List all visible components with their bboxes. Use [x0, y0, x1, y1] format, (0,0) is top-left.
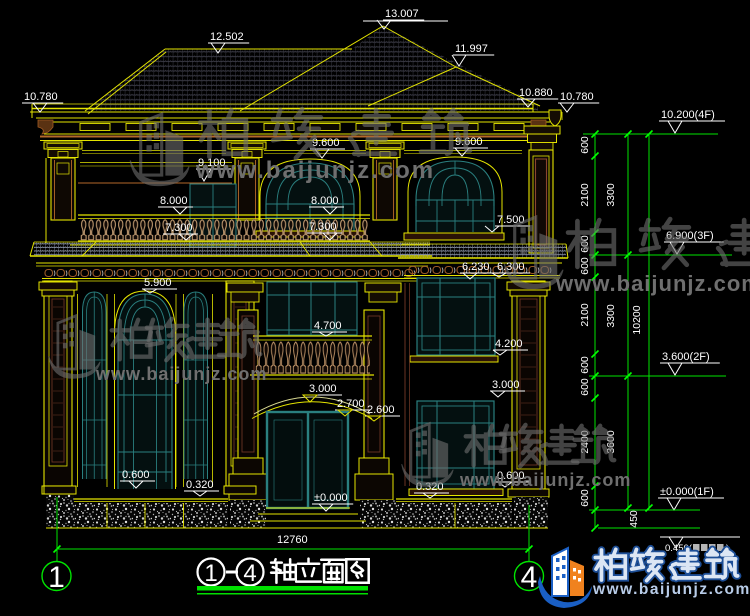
svg-text:3.600(2F): 3.600(2F) — [662, 351, 710, 363]
svg-text:www.baijunjz.com: www.baijunjz.com — [592, 581, 750, 598]
svg-text:5.900: 5.900 — [144, 277, 172, 289]
svg-text:13.007: 13.007 — [385, 8, 419, 20]
svg-text:6.300: 6.300 — [497, 261, 525, 273]
svg-text:600: 600 — [579, 136, 591, 154]
svg-text:4: 4 — [521, 561, 538, 594]
svg-text:2100: 2100 — [579, 303, 591, 327]
svg-text:±0.000: ±0.000 — [314, 492, 348, 504]
svg-text:600: 600 — [579, 356, 591, 374]
svg-text:www.baijunjz.com: www.baijunjz.com — [555, 271, 750, 296]
svg-text:600: 600 — [579, 378, 591, 396]
svg-text:12.502: 12.502 — [210, 31, 244, 43]
svg-text:600: 600 — [579, 489, 591, 507]
svg-text:8.000: 8.000 — [311, 195, 339, 207]
svg-text:11.997: 11.997 — [455, 43, 488, 55]
svg-text:7.300: 7.300 — [309, 221, 337, 233]
svg-text:4: 4 — [243, 560, 256, 587]
svg-text:2.700: 2.700 — [337, 398, 365, 410]
svg-text:3.000: 3.000 — [309, 383, 337, 395]
svg-text:1: 1 — [48, 561, 65, 594]
svg-text:12760: 12760 — [277, 534, 308, 546]
svg-text:8.000: 8.000 — [160, 195, 188, 207]
svg-text:www.baijunjz.com: www.baijunjz.com — [95, 364, 267, 384]
svg-text:10.200(4F): 10.200(4F) — [661, 109, 715, 121]
svg-text:3300: 3300 — [605, 304, 617, 328]
svg-text:www.baijunjz.com: www.baijunjz.com — [459, 470, 631, 490]
svg-text:0.320: 0.320 — [186, 479, 214, 491]
svg-text:6.230: 6.230 — [462, 261, 490, 273]
svg-text:450: 450 — [628, 510, 640, 528]
svg-text:4.200: 4.200 — [495, 338, 523, 350]
svg-text:www.baijunjz.com: www.baijunjz.com — [195, 157, 435, 184]
svg-text:3.000: 3.000 — [492, 379, 520, 391]
svg-text:3300: 3300 — [605, 183, 617, 207]
svg-text:4.700: 4.700 — [314, 320, 342, 332]
svg-text:1: 1 — [204, 560, 217, 587]
svg-text:10.880: 10.880 — [519, 87, 553, 99]
svg-text:10.780: 10.780 — [560, 91, 594, 103]
svg-text:0.600: 0.600 — [122, 469, 150, 481]
svg-text:10.780: 10.780 — [24, 91, 58, 103]
svg-text:10200: 10200 — [631, 305, 643, 334]
svg-text:±0.000(1F): ±0.000(1F) — [660, 486, 714, 498]
svg-text:2.600: 2.600 — [367, 404, 395, 416]
svg-text:2100: 2100 — [579, 183, 591, 207]
svg-text:7.300: 7.300 — [165, 222, 193, 234]
